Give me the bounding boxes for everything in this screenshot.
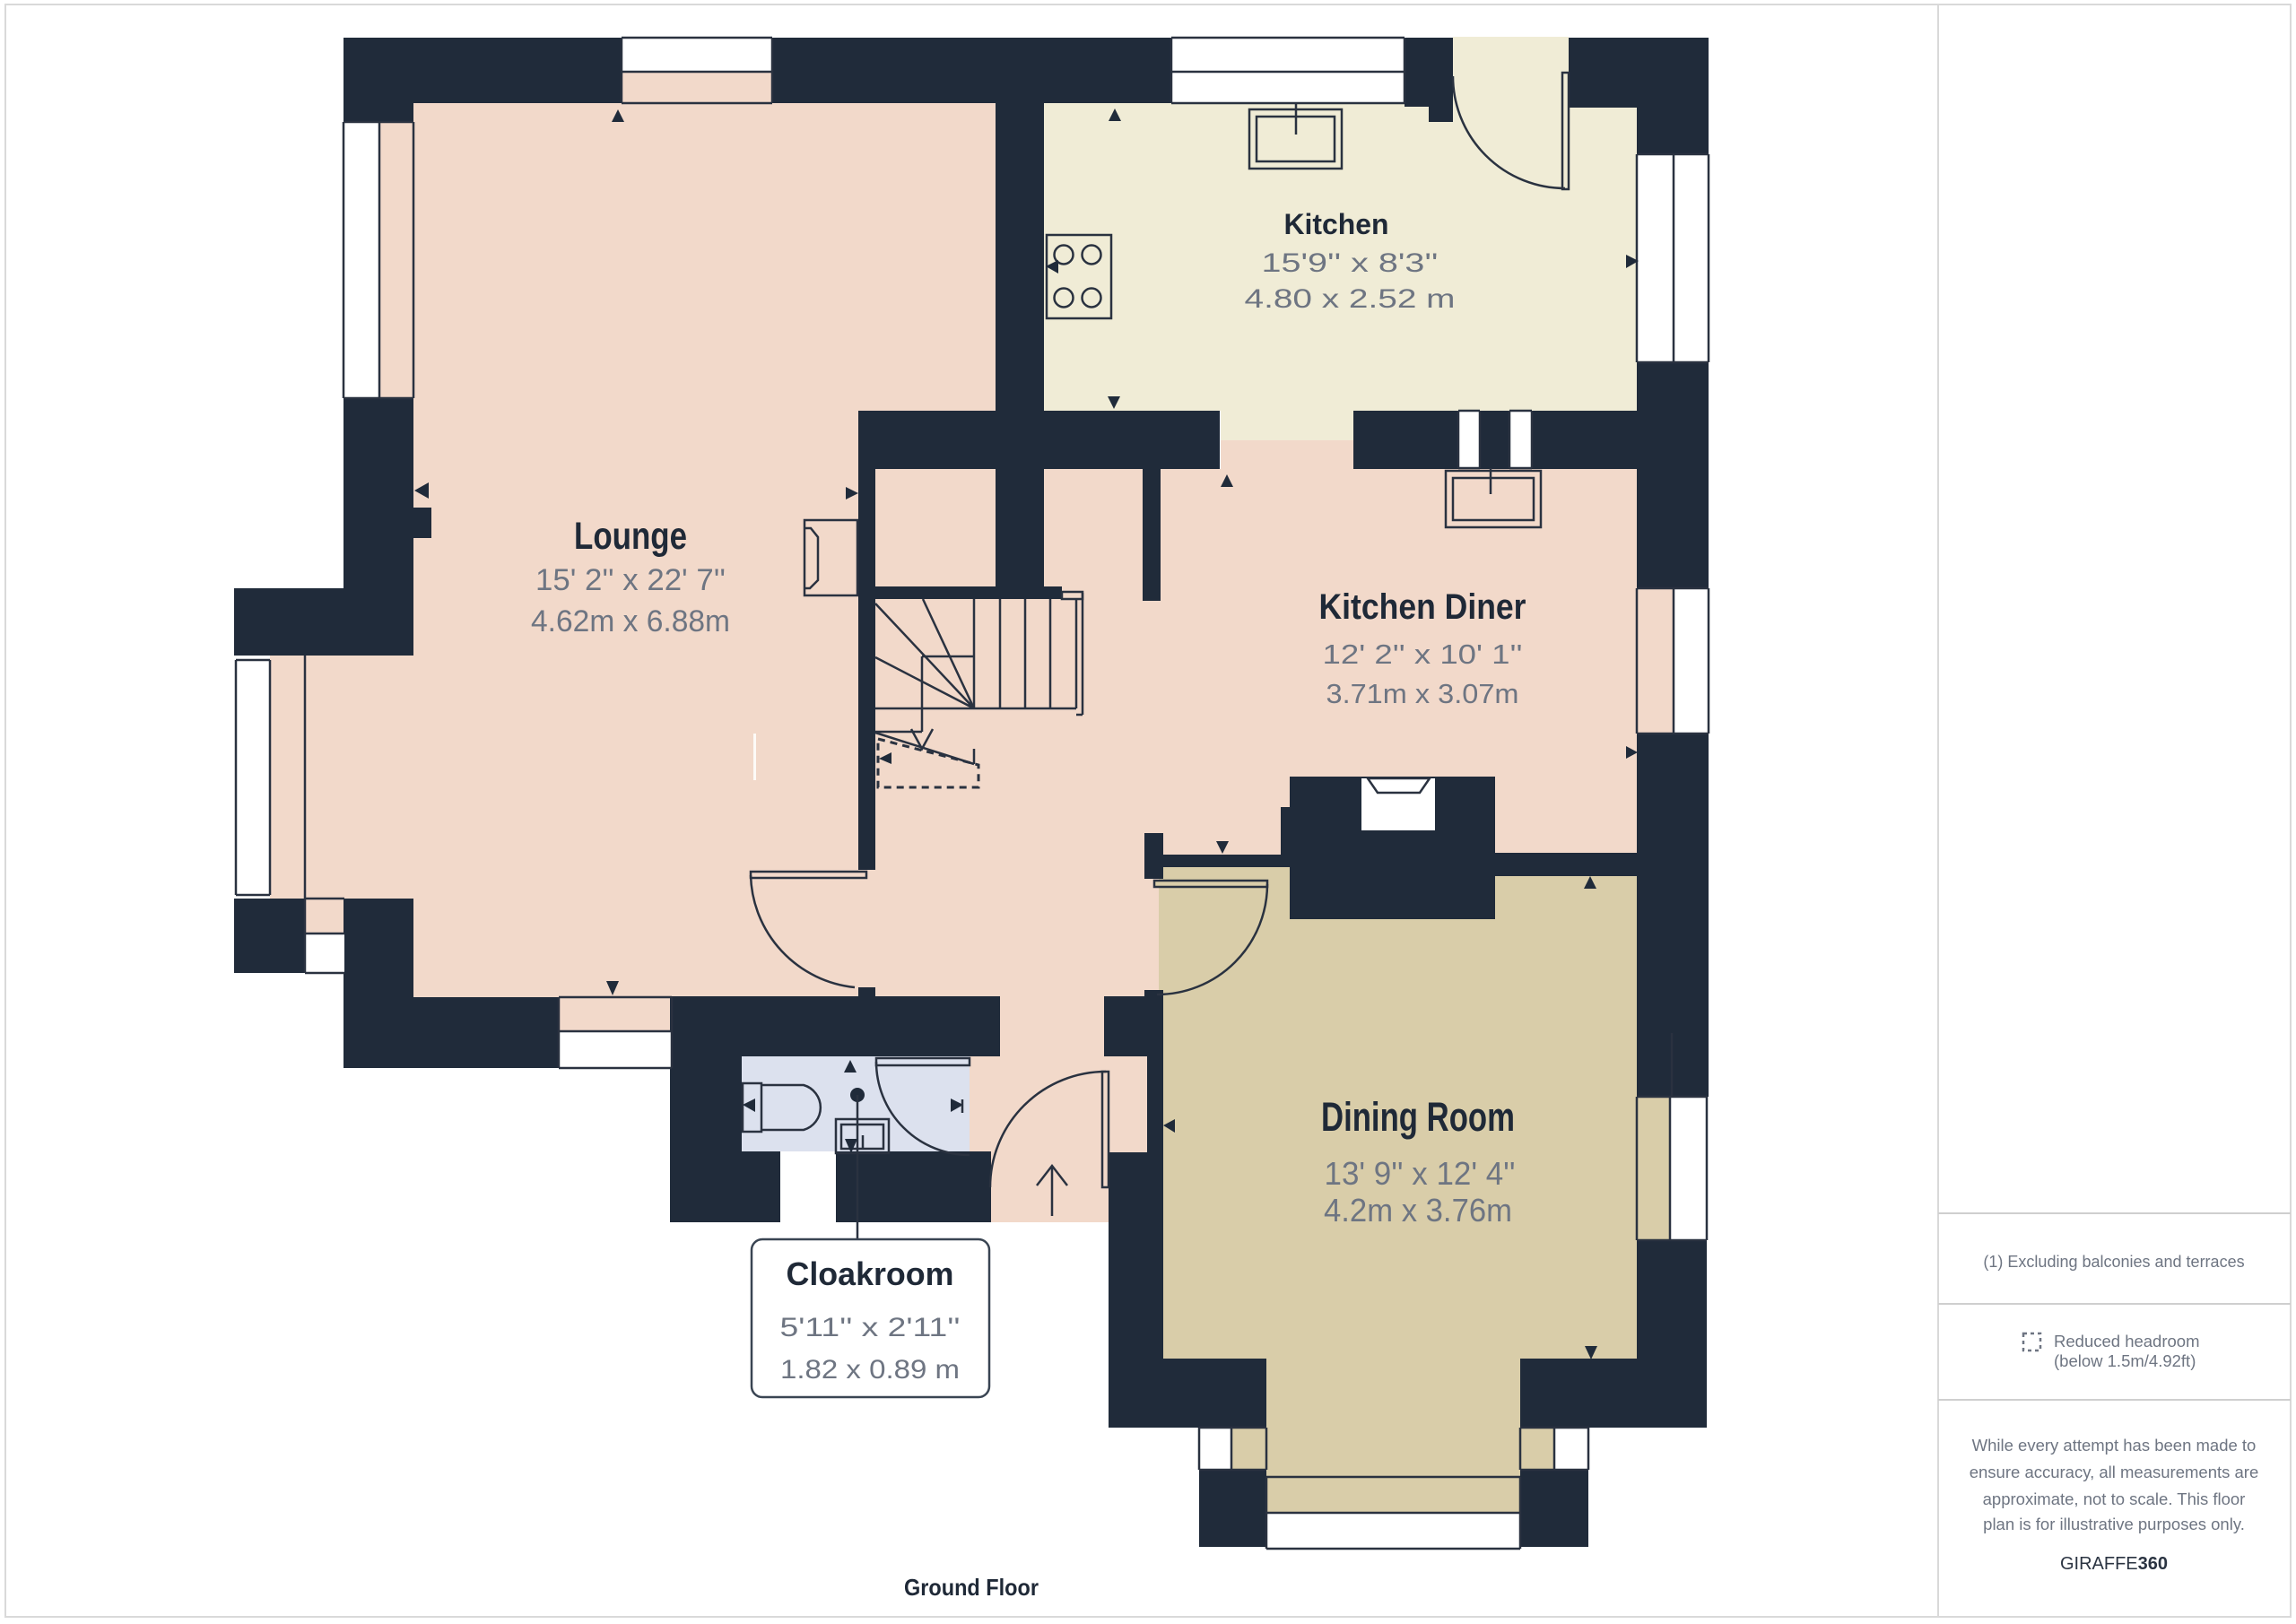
- svg-text:1.82 x 0.89 m: 1.82 x 0.89 m: [780, 1355, 960, 1385]
- svg-text:15'9'' x 8'3'': 15'9'' x 8'3'': [1262, 248, 1439, 278]
- svg-text:4.80 x 2.52 m: 4.80 x 2.52 m: [1245, 284, 1456, 314]
- svg-text:15' 2'' x 22' 7'': 15' 2'' x 22' 7'': [535, 563, 726, 597]
- svg-text:(below 1.5m/4.92ft): (below 1.5m/4.92ft): [2054, 1351, 2196, 1370]
- svg-text:(1) Excluding balconies and te: (1) Excluding balconies and terraces: [1983, 1253, 2244, 1271]
- svg-text:approximate, not to scale. Thi: approximate, not to scale. This floor: [1983, 1489, 2246, 1508]
- svg-text:3.71m x 3.07m: 3.71m x 3.07m: [1326, 678, 1519, 709]
- svg-text:12' 2'' x 10' 1'': 12' 2'' x 10' 1'': [1323, 638, 1523, 670]
- svg-text:Dining Room: Dining Room: [1321, 1094, 1515, 1140]
- svg-text:5'11'' x 2'11'': 5'11'' x 2'11'': [780, 1313, 961, 1342]
- svg-text:ensure accuracy, all measureme: ensure accuracy, all measurements are: [1970, 1463, 2259, 1481]
- svg-text:Cloakroom: Cloakroom: [787, 1255, 954, 1292]
- svg-text:GIRAFFE360: GIRAFFE360: [2060, 1554, 2168, 1574]
- svg-text:4.62m x 6.88m: 4.62m x 6.88m: [531, 604, 730, 638]
- svg-text:Kitchen: Kitchen: [1284, 208, 1389, 240]
- svg-text:plan is for illustrative purpo: plan is for illustrative purposes only.: [1983, 1515, 2245, 1533]
- svg-text:Reduced headroom: Reduced headroom: [2054, 1332, 2200, 1350]
- svg-text:Kitchen Diner: Kitchen Diner: [1319, 587, 1526, 627]
- svg-text:13' 9'' x 12' 4'': 13' 9'' x 12' 4'': [1325, 1155, 1516, 1192]
- svg-text:4.2m x 3.76m: 4.2m x 3.76m: [1324, 1192, 1512, 1229]
- svg-text:While every attempt has been m: While every attempt has been made to: [1972, 1436, 2257, 1455]
- svg-text:Ground Floor: Ground Floor: [904, 1574, 1039, 1601]
- svg-text:Lounge: Lounge: [574, 515, 687, 558]
